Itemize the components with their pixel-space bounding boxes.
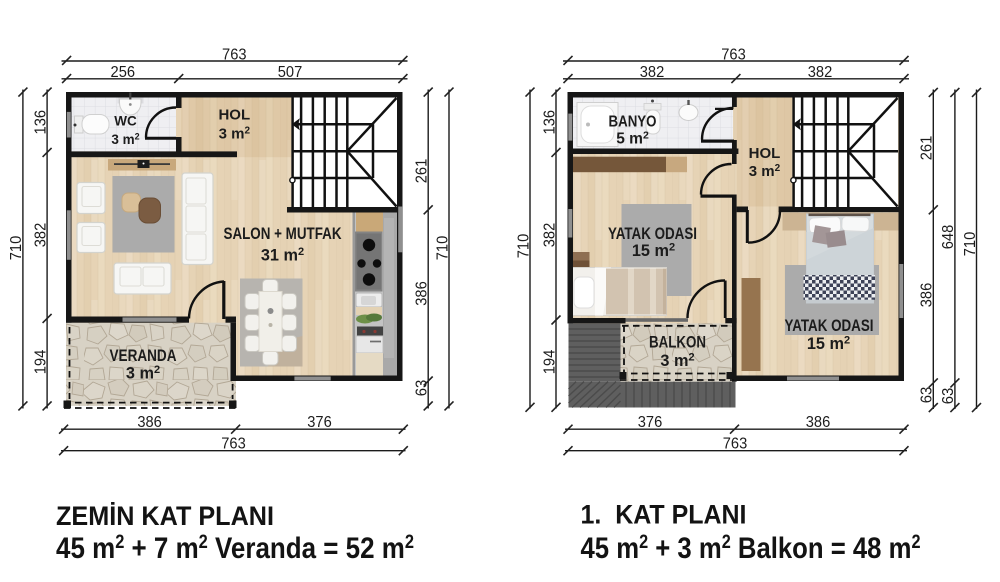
svg-text:15 m2: 15 m2: [632, 242, 675, 261]
svg-text:382: 382: [808, 64, 833, 81]
svg-text:386: 386: [806, 414, 831, 431]
svg-text:HOL: HOL: [218, 107, 250, 124]
svg-text:648: 648: [940, 225, 957, 250]
svg-text:63: 63: [414, 380, 431, 397]
svg-text:31 m2: 31 m2: [261, 246, 304, 265]
svg-text:45 m2 + 7 m2 Veranda = 52 m2: 45 m2 + 7 m2 Veranda = 52 m2: [56, 532, 414, 565]
svg-text:1. KAT PLANI: 1. KAT PLANI: [581, 500, 747, 530]
svg-text:376: 376: [307, 414, 332, 431]
svg-text:136: 136: [32, 110, 49, 135]
svg-text:386: 386: [137, 414, 162, 431]
svg-text:BALKON: BALKON: [649, 333, 706, 351]
svg-text:ZEMİN KAT PLANI: ZEMİN KAT PLANI: [56, 501, 274, 531]
svg-text:507: 507: [278, 64, 303, 81]
svg-text:SALON + MUTFAK: SALON + MUTFAK: [224, 225, 342, 243]
svg-text:WC: WC: [114, 113, 137, 128]
svg-text:763: 763: [221, 435, 246, 452]
svg-text:45 m2 + 3 m2 Balkon = 48 m2: 45 m2 + 3 m2 Balkon = 48 m2: [581, 532, 921, 565]
svg-text:710: 710: [515, 234, 532, 259]
svg-text:BANYO: BANYO: [609, 114, 657, 131]
svg-text:382: 382: [640, 64, 665, 81]
svg-text:15 m2: 15 m2: [807, 334, 850, 353]
svg-text:194: 194: [32, 350, 49, 375]
svg-text:YATAK ODASI: YATAK ODASI: [785, 317, 874, 335]
svg-text:VERANDA: VERANDA: [110, 347, 177, 365]
svg-text:763: 763: [723, 435, 748, 452]
svg-text:YATAK ODASI: YATAK ODASI: [608, 225, 697, 243]
svg-text:HOL: HOL: [749, 145, 781, 162]
svg-text:386: 386: [414, 281, 431, 306]
svg-text:261: 261: [919, 136, 936, 161]
svg-text:710: 710: [962, 232, 979, 257]
svg-text:136: 136: [541, 110, 558, 135]
svg-text:710: 710: [434, 236, 451, 261]
svg-text:376: 376: [638, 414, 663, 431]
svg-text:382: 382: [541, 223, 558, 248]
svg-text:261: 261: [414, 159, 431, 184]
svg-text:256: 256: [111, 64, 136, 81]
svg-text:63: 63: [940, 388, 957, 405]
svg-text:194: 194: [541, 350, 558, 375]
svg-text:763: 763: [721, 46, 746, 63]
svg-text:382: 382: [32, 223, 49, 248]
svg-text:63: 63: [919, 387, 936, 404]
svg-text:710: 710: [8, 236, 25, 261]
svg-text:763: 763: [222, 46, 247, 63]
svg-text:386: 386: [919, 283, 936, 308]
